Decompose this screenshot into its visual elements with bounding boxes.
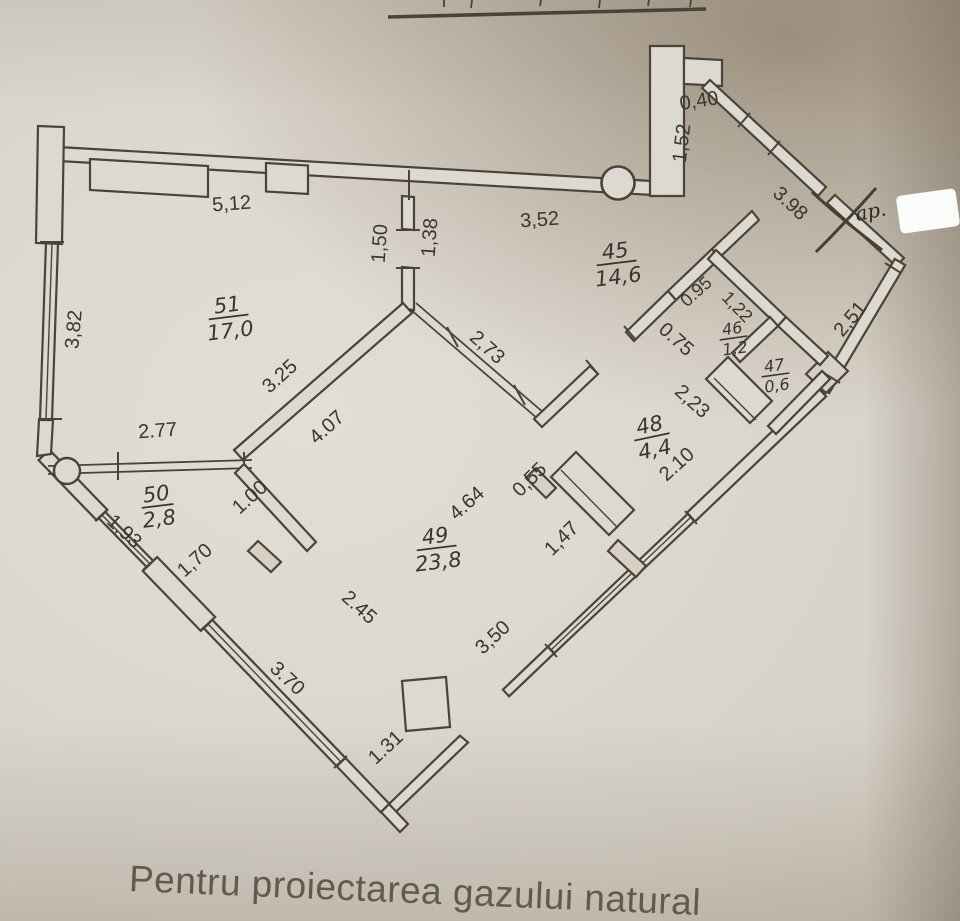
svg-text:ap.: ap. xyxy=(853,196,888,225)
wall-left-corner xyxy=(37,420,53,456)
svg-text:23,8: 23,8 xyxy=(414,547,463,577)
room-label-46: 46 1,2 xyxy=(717,317,750,360)
dim-398: 3.98 xyxy=(768,182,811,225)
gas-riser-room50 xyxy=(54,458,80,484)
floor-plan-photo: ap. 5,12 3,52 0,40 1,52 3.98 2,51 3,82 2… xyxy=(0,0,960,921)
wall-left-pier xyxy=(36,126,64,244)
room-label-45: 45 14,6 xyxy=(590,236,643,291)
dim-170: 1,70 xyxy=(173,539,217,581)
room-label-49: 49 23,8 xyxy=(410,521,463,576)
door-entry-leaf xyxy=(402,677,450,731)
wall-ne-diagonal-a xyxy=(702,80,826,196)
room-label-51: 51 17,0 xyxy=(202,290,255,345)
svg-text:46: 46 xyxy=(721,318,744,340)
cut-off-title-remnant xyxy=(388,0,706,17)
dim-075: 0.75 xyxy=(654,318,698,360)
wall-hall48-a xyxy=(534,366,598,427)
wall-tower-jog xyxy=(684,58,722,86)
dim-245: 2.45 xyxy=(337,586,381,628)
wall-room46-n xyxy=(712,211,759,258)
wall-top-pier-mid xyxy=(266,163,308,194)
svg-text:49: 49 xyxy=(420,523,449,550)
handwritten-annotation: ap. xyxy=(853,196,888,225)
room-label-50: 50 2,8 xyxy=(138,480,177,533)
room-label-48: 48 4,4 xyxy=(629,410,674,465)
svg-text:0,6: 0,6 xyxy=(763,374,791,396)
floor-plan-drawing: ap. 5,12 3,52 0,40 1,52 3.98 2,51 3,82 2… xyxy=(0,0,960,921)
dim-407: 4.07 xyxy=(305,406,349,448)
room-label-47: 47 0,6 xyxy=(759,354,792,397)
wall-hall-door-273 xyxy=(410,303,544,419)
dim-131: 1.31 xyxy=(364,726,407,769)
svg-text:1,2: 1,2 xyxy=(721,337,749,359)
dim-352: 3,52 xyxy=(519,208,559,233)
gas-riser-top xyxy=(602,167,635,200)
dim-464: 4.64 xyxy=(445,482,489,524)
wall-se-2 xyxy=(503,647,554,697)
interior-walls xyxy=(48,196,830,731)
dim-150: 1,50 xyxy=(368,223,393,263)
dim-382: 3,82 xyxy=(61,309,86,350)
wall-room47-ne xyxy=(778,317,828,365)
dim-138: 1,38 xyxy=(418,217,443,257)
wall-tower xyxy=(650,46,684,196)
wall-top-pier-left xyxy=(90,159,208,197)
whiteout-redaction xyxy=(896,188,960,234)
svg-text:14,6: 14,6 xyxy=(594,262,643,292)
door-room47 xyxy=(706,357,772,423)
dim-223: 2,23 xyxy=(670,380,714,422)
svg-text:17,0: 17,0 xyxy=(206,316,255,346)
svg-text:51: 51 xyxy=(212,292,241,319)
svg-text:45: 45 xyxy=(600,238,629,265)
svg-text:50: 50 xyxy=(141,481,170,508)
dim-040: 0,40 xyxy=(678,87,720,115)
dim-325: 3.25 xyxy=(258,355,302,397)
wall-hall-vertical-a xyxy=(402,196,414,230)
dim-152: 1,52 xyxy=(669,123,696,164)
dim-277: 2.77 xyxy=(137,419,177,444)
dim-350: 3,50 xyxy=(471,616,514,659)
dim-147: 1,47 xyxy=(540,517,583,560)
dim-100: 1.00 xyxy=(228,476,272,518)
dim-512: 5,12 xyxy=(211,192,251,217)
window-370-centerline xyxy=(208,624,341,762)
wall-room50-step xyxy=(248,541,281,572)
svg-text:47: 47 xyxy=(763,355,787,377)
svg-text:2,8: 2,8 xyxy=(141,505,177,533)
